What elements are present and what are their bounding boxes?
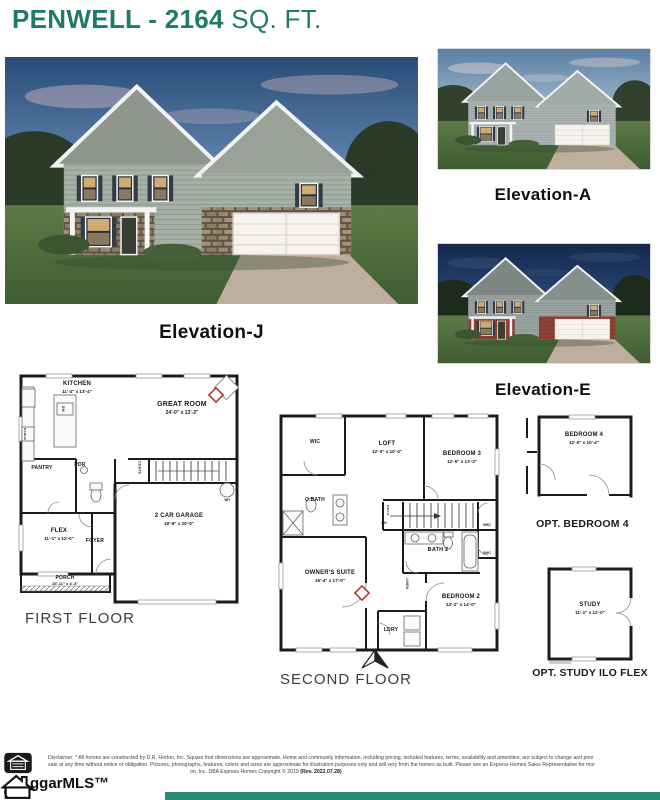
second-floor-caption: SECOND FLOOR <box>280 671 412 688</box>
elevation-e-label: Elevation-E <box>437 380 649 400</box>
room-label-obath: O.BATH <box>286 497 344 503</box>
dishwasher-label: DW <box>61 406 64 416</box>
opt-bedroom4-linework <box>525 408 640 513</box>
second-floor-plan: WIC LOFT 12'-0" x 10'-4" BEDROOM 3 12'-5… <box>278 413 502 660</box>
elevation-a-label: Elevation-A <box>437 185 649 205</box>
flyer-page: PENWELL - 2164 SQ. FT. Elevation-J <box>0 0 660 800</box>
elevation-j-label: Elevation-J <box>5 322 418 344</box>
room-label-owners-suite: OWNER'S SUITE 15'-4" x 17'-0" <box>290 570 370 583</box>
room-label-bedroom2: BEDROOM 2 13'-2" x 14'-0" <box>428 594 494 607</box>
room-label-bath2: BATH 2 <box>412 547 464 554</box>
room-label-porch: PORCH 15'-11" x 4'-3" <box>28 575 102 586</box>
room-label-wic-hall: WIC <box>477 512 497 532</box>
range-label: RANGE <box>23 428 26 441</box>
water-heater-label: WH <box>221 487 233 507</box>
opt-study-plan: STUDY 11'-1" x 12'-0" <box>540 562 640 667</box>
page-title: PENWELL - 2164 SQ. FT. <box>12 4 322 35</box>
room-label-foyer: FOYER <box>74 538 116 544</box>
room-label-loft: LOFT 12'-0" x 10'-4" <box>358 441 416 454</box>
photo-elevation-j <box>5 57 418 304</box>
equal-housing-icon <box>3 752 33 774</box>
first-floor-plan: KITCHEN 11'-4" x 13'-4" GREAT ROOM 24'-0… <box>18 373 242 608</box>
room-label-ldry: LDRY <box>376 627 406 633</box>
disclaimer-revision: (Rev. 2022.07.28) <box>300 769 341 775</box>
disclaimer-line-1: Disclaimer: * All homes are constructed … <box>48 755 654 762</box>
disclaimer: Disclaimer: * All homes are constructed … <box>48 755 654 775</box>
opt-bedroom4-plan: BEDROOM 4 12'-0" x 10'-4" <box>525 408 640 513</box>
accent-bar <box>165 792 660 800</box>
opt-study-caption: OPT. STUDY ILO FLEX <box>528 667 652 679</box>
room-label-garage: 2 CAR GARAGE 19'-9" x 20'-0" <box>128 513 230 526</box>
room-label-wic-owner: WIC <box>290 439 340 445</box>
room-label-bedroom4: BEDROOM 4 12'-0" x 10'-4" <box>545 432 623 445</box>
opt-bedroom4-caption: OPT. BEDROOM 4 <box>525 518 640 530</box>
plan-name: PENWELL - 2164 <box>12 4 224 34</box>
disclaimer-line-2: sale at any time without notice or oblig… <box>48 762 654 769</box>
room-label-great-room: GREAT ROOM 24'-0" x 13'-3" <box>132 401 232 416</box>
coats-closet-label: COATS <box>137 461 140 481</box>
room-label-study: STUDY 11'-1" x 12'-0" <box>552 602 628 615</box>
room-label-kitchen: KITCHEN 11'-4" x 13'-4" <box>44 381 110 394</box>
photo-elevation-e <box>437 243 651 364</box>
first-floor-caption: FIRST FLOOR <box>25 610 135 627</box>
room-label-pdr: PDR <box>62 462 98 468</box>
linen-closet-label: LINEN <box>405 578 408 608</box>
room-label-bedroom3: BEDROOM 3 12'-5" x 13'-3" <box>428 451 496 464</box>
disclaimer-line-3: on, Inc. DBA Express Homes Copyright © 2… <box>190 769 654 776</box>
north-arrow-icon <box>360 648 390 672</box>
plan-sqft: SQ. FT. <box>224 4 322 34</box>
photo-elevation-a <box>437 48 651 170</box>
stairs-dn-label: DN <box>377 510 391 530</box>
room-label-wic-bed2: WIC <box>477 540 497 560</box>
room-label-pantry: PANTRY <box>20 465 64 471</box>
mls-logo-text: ggarMLS™ <box>30 775 109 792</box>
